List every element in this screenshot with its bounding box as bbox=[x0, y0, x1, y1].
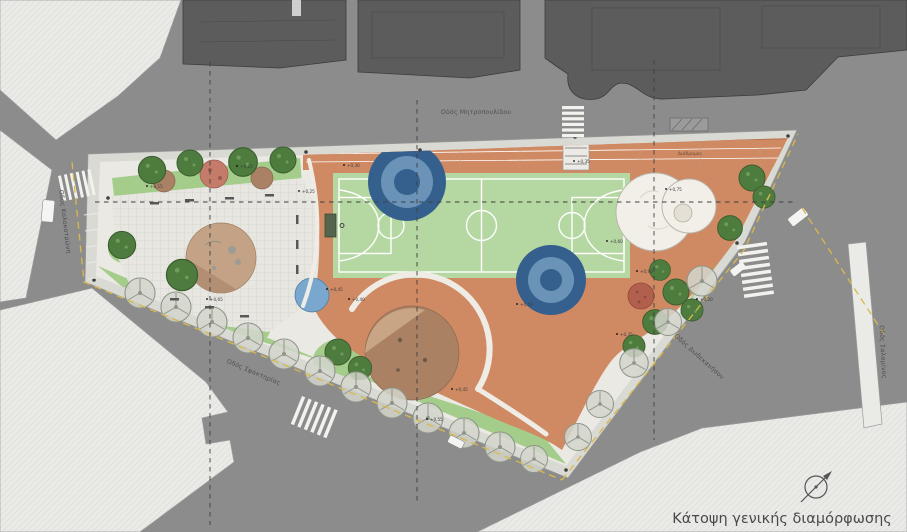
site-plan-drawing: +0,15 +0,20 +0,25 +0,30 +0,35 +0,40 +0,4… bbox=[0, 0, 907, 532]
spot-elevation: +0,60 bbox=[610, 239, 623, 244]
playground-sand-circle bbox=[186, 223, 256, 293]
spot-elevation: +0,20 bbox=[240, 164, 253, 169]
spot-elevation: +0,40 bbox=[352, 297, 365, 302]
spot-elevation: +0,35 bbox=[620, 332, 633, 337]
spot-elevation: +0,90 bbox=[640, 269, 653, 274]
spot-elevation: +0,45 bbox=[455, 387, 468, 392]
street-label-top: Οδός Μητροπουλίδου bbox=[441, 108, 512, 116]
spot-elevation: +0,45 bbox=[330, 287, 343, 292]
play-mound-circle bbox=[365, 306, 459, 400]
spot-elevation: +0,25 bbox=[302, 189, 315, 194]
shade-canopy-large bbox=[368, 143, 446, 221]
track-label: Διάδρομος bbox=[678, 150, 703, 157]
spot-elevation: +0,65 bbox=[210, 297, 223, 302]
drawing-caption: Κάτοψη γενικής διαμόρφωσης bbox=[672, 511, 892, 527]
spot-elevation: +0,35 bbox=[577, 159, 590, 164]
site-plan: +0,15 +0,20 +0,25 +0,30 +0,35 +0,40 +0,4… bbox=[0, 0, 907, 532]
spot-elevation: +0,75 bbox=[669, 187, 682, 192]
street-speed-table bbox=[670, 118, 708, 131]
spot-elevation: +0,15 bbox=[150, 184, 163, 189]
spot-elevation: +0,20 bbox=[700, 297, 713, 302]
spot-elevation: +0,30 bbox=[347, 163, 360, 168]
red-mosaic-circle bbox=[628, 283, 654, 309]
spot-elevation: +0,55 bbox=[430, 417, 443, 422]
spot-elevation: +0,50 bbox=[520, 302, 533, 307]
